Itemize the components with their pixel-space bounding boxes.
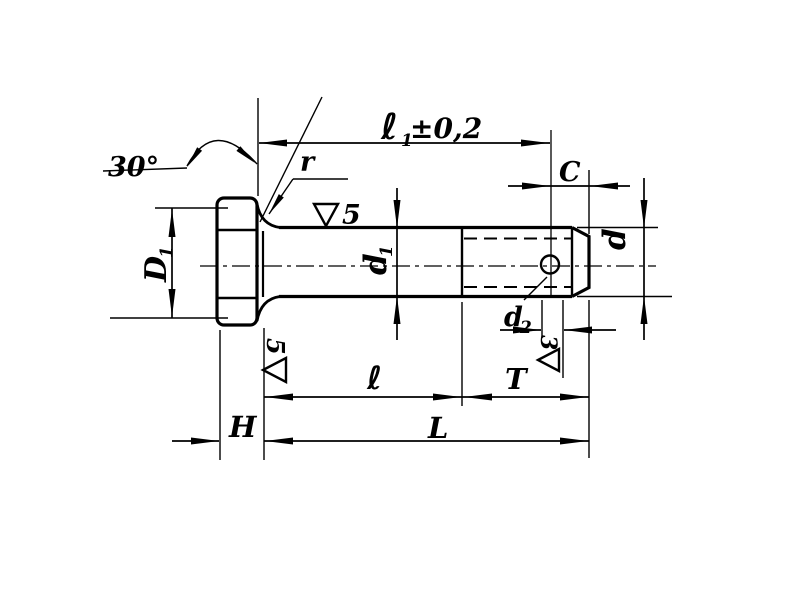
end-chamfer-outline <box>572 228 589 297</box>
bolt-outline <box>217 198 589 325</box>
label-c: C <box>559 157 581 188</box>
label-d: d <box>597 228 633 250</box>
label-h: H <box>228 410 258 444</box>
label-L: L <box>427 411 448 445</box>
finish-end-value: 3 <box>535 335 561 350</box>
finish-head-value: 5 <box>261 338 290 355</box>
label-d1-group: d 1 <box>358 245 397 275</box>
extension-lines <box>103 97 672 460</box>
label-l1-tolerance: ±0,2 <box>410 112 482 145</box>
surface-finish-triangle-rotated-icon <box>263 358 286 382</box>
label-D1-group: D 1 <box>139 246 177 283</box>
surface-finish-triangle-end-icon <box>538 349 559 371</box>
fillet-top <box>257 204 280 228</box>
label-d2-sub: 2 <box>519 318 532 338</box>
label-D1-base: D <box>139 256 174 283</box>
label-fillet-r: r <box>300 147 316 178</box>
engineering-drawing: 5 5 3 30° r ℓ 1 ±0,2 C d d 1 D 1 d 2 ℓ T… <box>0 0 800 600</box>
surface-finish-triangle-icon <box>314 204 338 226</box>
label-t: T <box>505 362 529 396</box>
label-l1-base: ℓ <box>380 106 398 148</box>
drawing-canvas: 5 5 3 30° r ℓ 1 ±0,2 C d d 1 D 1 d 2 ℓ T… <box>0 0 800 600</box>
label-l: ℓ <box>366 359 382 397</box>
finish-shank-value: 5 <box>342 200 361 231</box>
fillet-bottom <box>257 297 280 322</box>
bolt-head <box>217 198 257 325</box>
cotter-pin-hole <box>541 256 559 274</box>
label-D1-sub: 1 <box>157 246 177 258</box>
label-d1-sub: 1 <box>377 245 397 257</box>
dimension-labels: 30° r ℓ 1 ±0,2 C d d 1 D 1 d 2 ℓ T L H <box>108 106 633 445</box>
label-angle-30: 30° <box>108 152 159 183</box>
label-d-group: d <box>597 228 633 250</box>
